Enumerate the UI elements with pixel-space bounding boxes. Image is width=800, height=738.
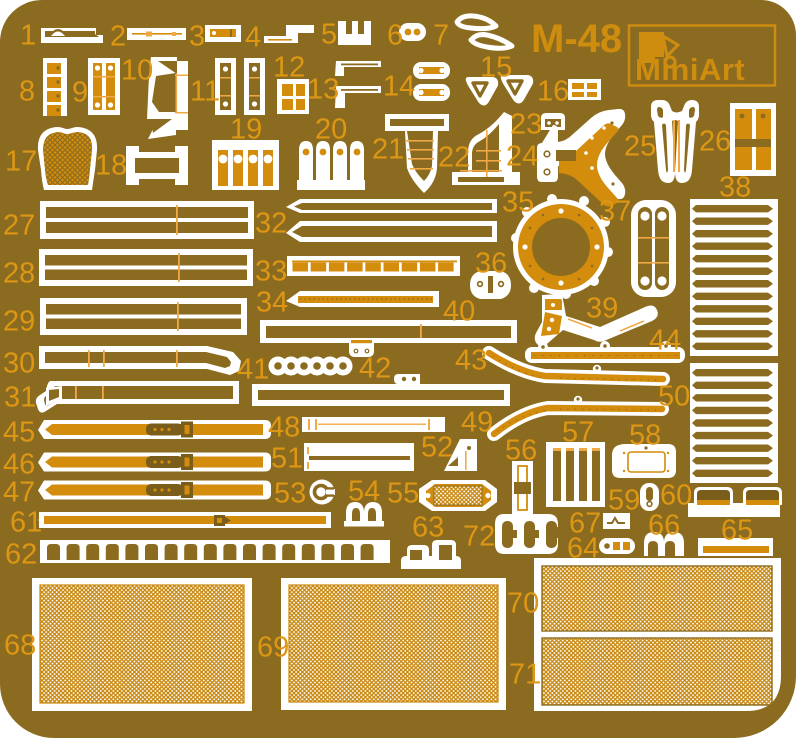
svg-text:47: 47 [3, 477, 35, 509]
svg-text:13: 13 [307, 74, 339, 106]
svg-text:21: 21 [372, 134, 404, 166]
svg-text:58: 58 [629, 420, 661, 452]
svg-text:34: 34 [256, 287, 288, 319]
svg-text:33: 33 [255, 256, 287, 288]
svg-text:26: 26 [699, 126, 731, 158]
svg-text:25: 25 [624, 131, 656, 163]
svg-text:7: 7 [433, 20, 449, 52]
svg-text:43: 43 [455, 345, 487, 377]
svg-text:5: 5 [321, 19, 337, 51]
svg-text:41: 41 [237, 354, 269, 386]
svg-text:42: 42 [359, 353, 391, 385]
svg-text:8: 8 [19, 76, 35, 108]
svg-text:27: 27 [3, 210, 35, 242]
svg-text:48: 48 [268, 412, 300, 444]
svg-text:40: 40 [443, 296, 475, 328]
svg-text:20: 20 [315, 114, 347, 146]
svg-text:M-48: M-48 [531, 17, 622, 61]
svg-text:2: 2 [110, 21, 126, 53]
svg-text:28: 28 [3, 258, 35, 290]
svg-text:45: 45 [3, 417, 35, 449]
svg-text:66: 66 [648, 510, 680, 542]
svg-text:14: 14 [383, 71, 415, 103]
svg-text:56: 56 [505, 435, 537, 467]
svg-text:36: 36 [475, 248, 507, 280]
svg-text:44: 44 [649, 325, 681, 357]
svg-text:68: 68 [4, 630, 36, 662]
svg-text:30: 30 [3, 348, 35, 380]
svg-text:15: 15 [480, 52, 512, 84]
svg-text:53: 53 [274, 478, 306, 510]
svg-text:16: 16 [537, 76, 569, 108]
svg-text:31: 31 [4, 382, 36, 414]
svg-text:52: 52 [421, 432, 453, 464]
svg-text:49: 49 [461, 407, 493, 439]
svg-text:65: 65 [721, 515, 753, 547]
svg-text:11: 11 [190, 76, 220, 108]
svg-text:50: 50 [658, 381, 690, 413]
svg-text:9: 9 [72, 77, 88, 109]
svg-text:67: 67 [569, 508, 601, 540]
svg-text:60: 60 [660, 480, 692, 512]
svg-text:24: 24 [506, 141, 538, 173]
svg-text:3: 3 [189, 21, 205, 53]
svg-text:23: 23 [510, 109, 542, 141]
svg-text:18: 18 [95, 150, 127, 182]
svg-text:54: 54 [348, 476, 380, 508]
svg-text:MiniArt: MiniArt [635, 52, 745, 87]
svg-text:10: 10 [121, 55, 153, 87]
svg-text:62: 62 [5, 539, 37, 571]
svg-text:39: 39 [586, 293, 618, 325]
svg-text:22: 22 [438, 142, 470, 174]
svg-text:38: 38 [719, 172, 751, 204]
svg-text:32: 32 [255, 208, 287, 240]
svg-text:59: 59 [608, 485, 640, 517]
svg-text:71: 71 [509, 659, 541, 691]
svg-text:57: 57 [562, 417, 594, 449]
svg-text:1: 1 [20, 20, 36, 52]
svg-text:17: 17 [5, 146, 37, 178]
svg-text:12: 12 [273, 52, 305, 84]
svg-text:55: 55 [387, 478, 419, 510]
svg-text:61: 61 [10, 507, 42, 539]
svg-text:19: 19 [230, 114, 262, 146]
svg-text:6: 6 [387, 20, 403, 52]
svg-text:35: 35 [502, 187, 534, 219]
svg-text:51: 51 [271, 443, 303, 475]
svg-text:4: 4 [245, 22, 261, 54]
svg-text:70: 70 [507, 588, 539, 620]
svg-text:72: 72 [463, 521, 495, 553]
svg-text:69: 69 [257, 632, 289, 664]
svg-text:29: 29 [3, 306, 35, 338]
svg-text:63: 63 [412, 512, 444, 544]
svg-text:37: 37 [599, 196, 631, 228]
